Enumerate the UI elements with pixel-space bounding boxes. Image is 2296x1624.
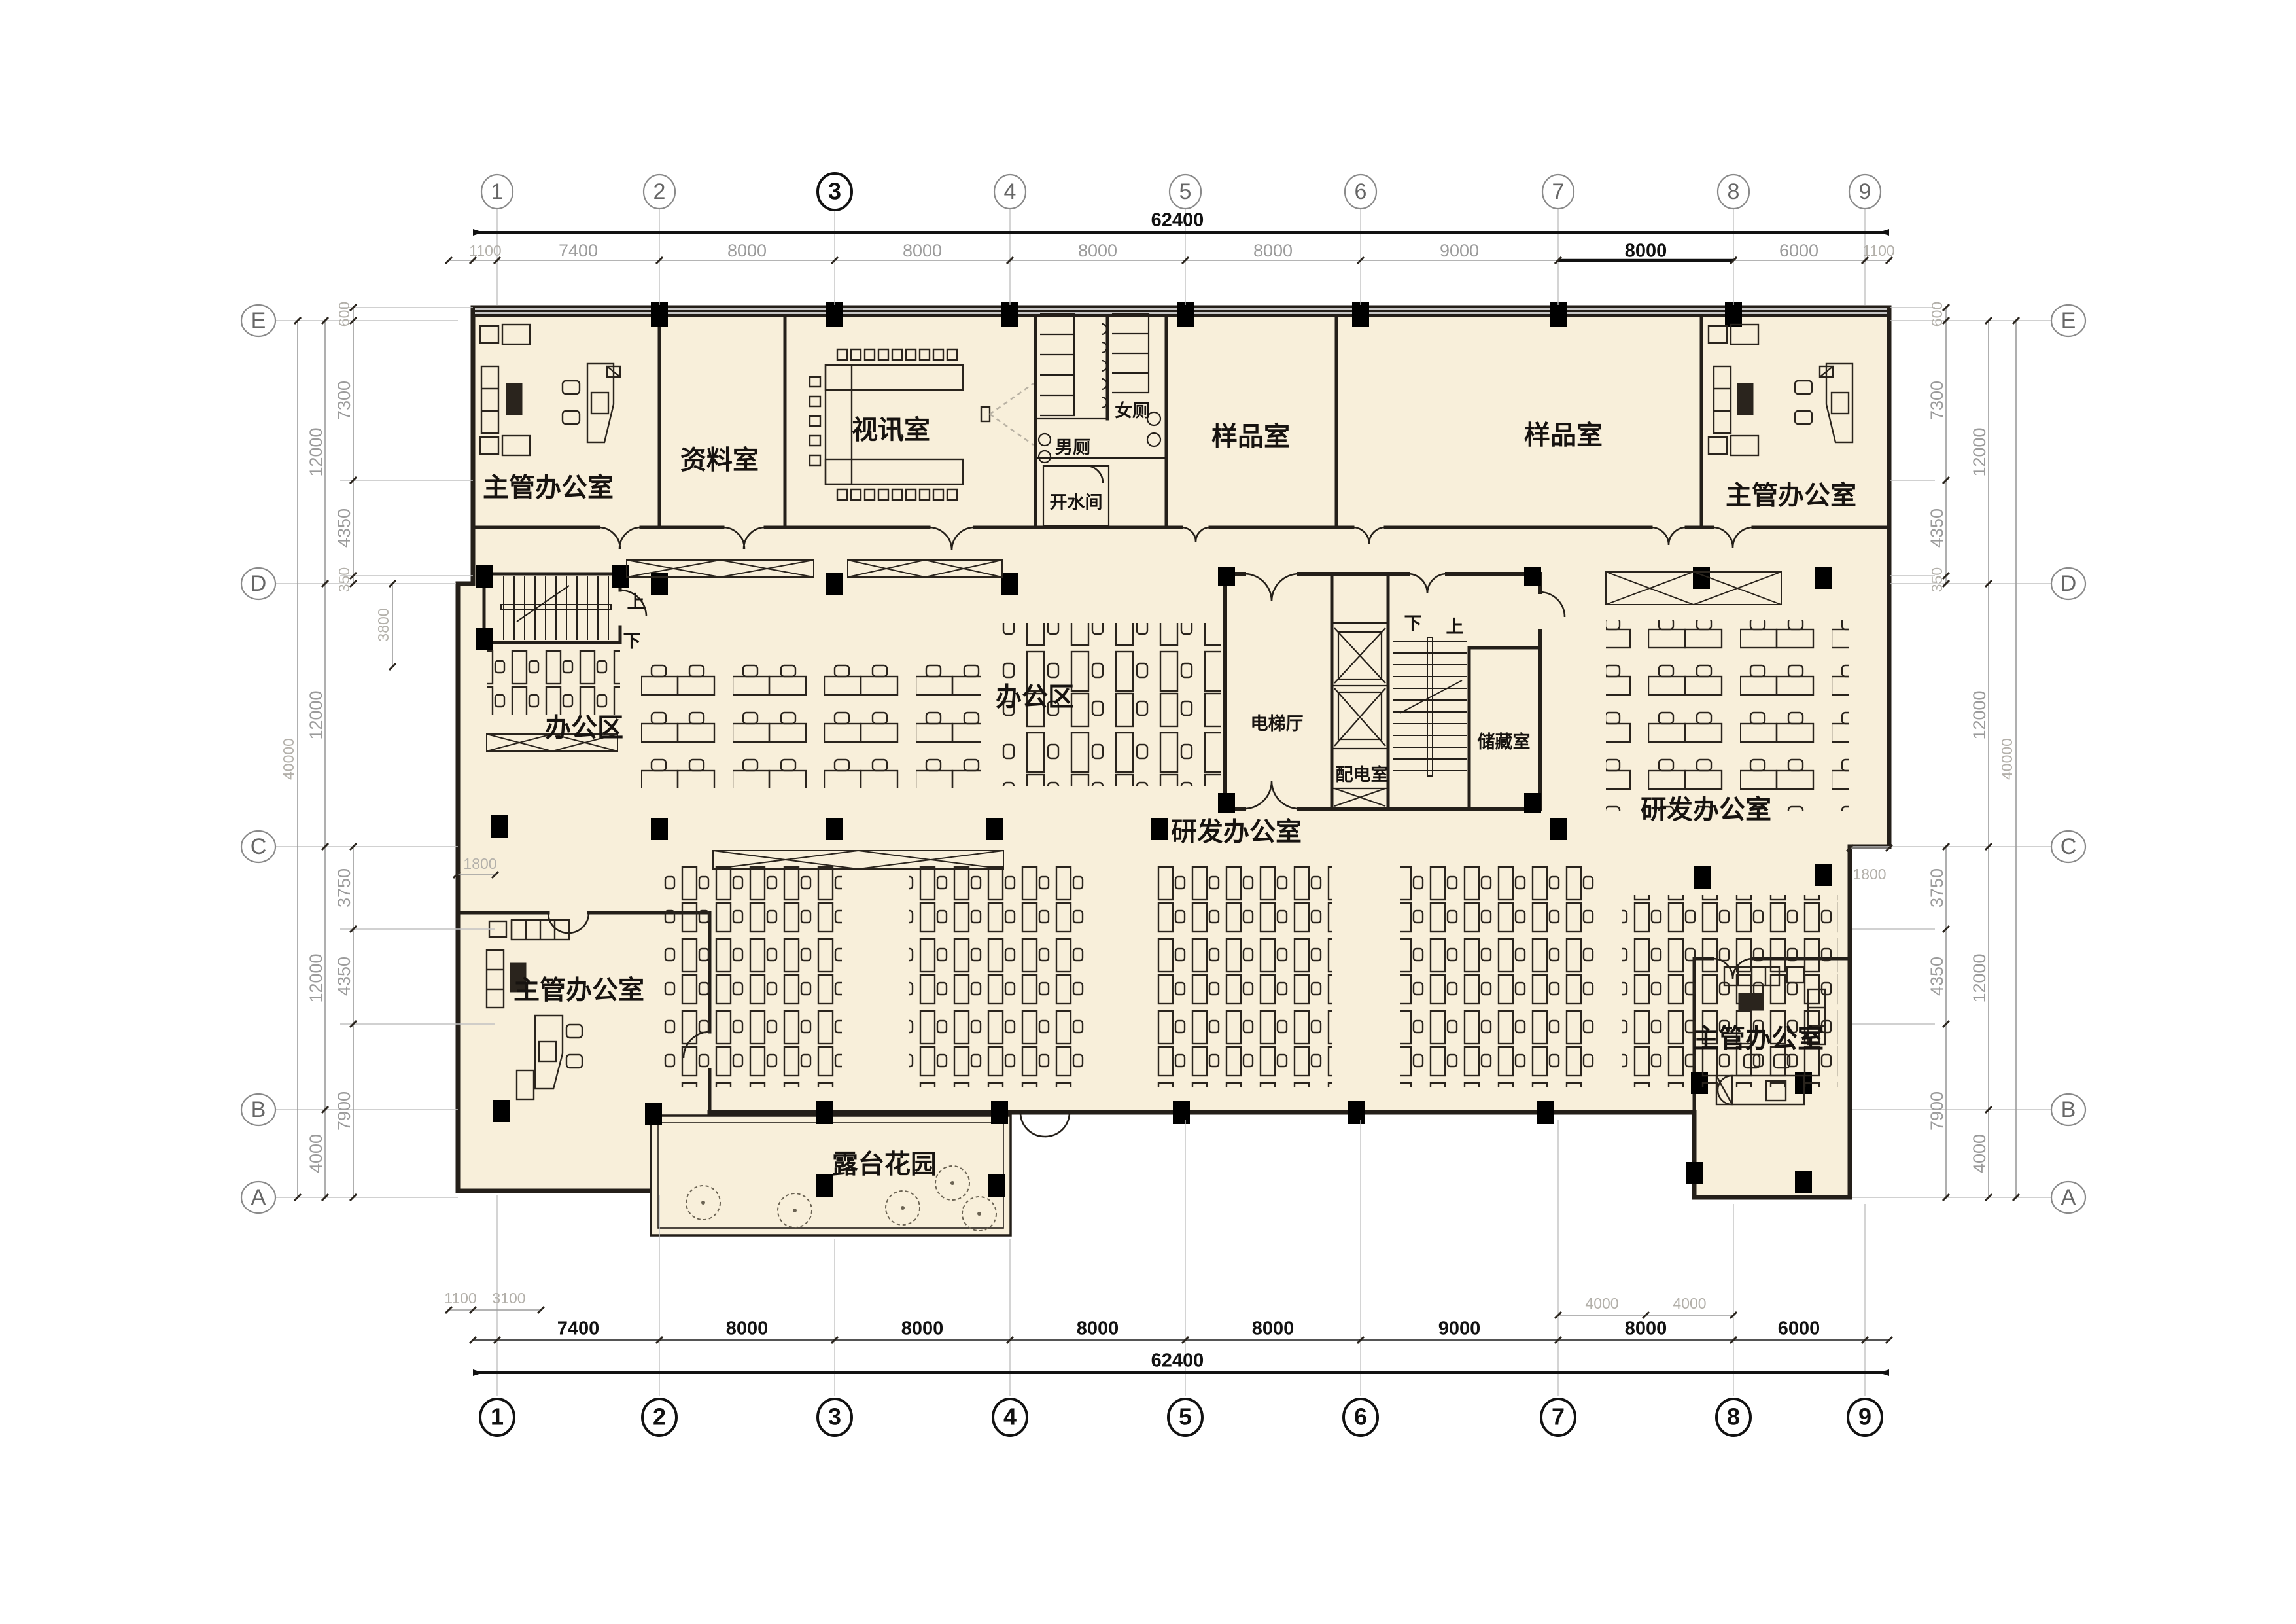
dim-bottom-seg: 7400 — [557, 1318, 600, 1339]
dim-bottom-sub: 4000 — [1673, 1295, 1706, 1312]
dim-top-pre: 1100 — [469, 242, 501, 259]
dim-left-stair: 3800 — [375, 608, 392, 641]
grid-bubble-label: 3 — [828, 178, 841, 205]
grid-bubble-label: 6 — [1354, 1403, 1367, 1430]
grid-bubble-label: C — [2061, 834, 2077, 859]
grid-bubbles-bottom: 1 2 3 4 5 6 7 8 9 — [480, 1399, 1882, 1436]
dim-top-seg: 7400 — [559, 241, 598, 260]
dim-left-mid: 4000 — [306, 1134, 326, 1173]
grid-bubble-label: E — [251, 308, 266, 333]
desk-cluster — [1400, 865, 1596, 1087]
room-label-rnd-c: 研发办公室 — [1171, 818, 1302, 847]
dim-left: 600 — [336, 302, 353, 327]
room-label-sample-2: 样品室 — [1524, 421, 1603, 450]
dim-bottom-seg: 8000 — [1077, 1318, 1119, 1339]
dim-left: 4350 — [334, 957, 354, 996]
grid-bubble-label: 8 — [1728, 179, 1740, 204]
room-label-sample-1: 样品室 — [1211, 423, 1290, 451]
dim-bottom: 1100 3100 4000 4000 7400 8000 8000 8000 … — [444, 1290, 1889, 1373]
grid-bubble-label: A — [251, 1185, 266, 1210]
dim-bottom-seg: 8000 — [1625, 1318, 1667, 1339]
room-label-exec-sw: 主管办公室 — [513, 976, 644, 1005]
dim-top-seg: 6000 — [1779, 241, 1818, 260]
room-label-men-toilet: 男厕 — [1055, 438, 1090, 457]
dim-left: 7300 — [334, 381, 354, 420]
grid-bubble-label: D — [2061, 571, 2077, 596]
grid-bubble-label: B — [251, 1097, 266, 1122]
desk-cluster — [1155, 865, 1332, 1087]
room-label-storage: 储藏室 — [1478, 732, 1531, 752]
grid-bubble-label: 9 — [1858, 1403, 1871, 1430]
room-label-office-area-c: 办公区 — [996, 683, 1074, 712]
grid-bubble-label: 5 — [1179, 179, 1192, 204]
desk-cluster — [1622, 895, 1838, 1087]
grid-bubbles-right: E D C B A — [2051, 305, 2085, 1213]
dim-left: 4350 — [334, 508, 354, 548]
dim-top-seg: 8000 — [727, 241, 767, 260]
dim-right-total: 40000 — [1998, 738, 2015, 780]
dim-bottom-sub: 3100 — [492, 1290, 525, 1307]
dim-right: 7900 — [1927, 1091, 1947, 1131]
dim-right-mid: 12000 — [1970, 690, 1989, 739]
floor-plan-page: 主管办公室 资料室 视讯室 男厕 女厕 开水间 样品室 样品室 主管办公室 办公… — [0, 0, 2296, 1624]
desk-cluster — [909, 865, 1087, 1087]
dim-bottom-total: 62400 — [1151, 1350, 1204, 1371]
stair-down-label-west: 下 — [623, 631, 641, 651]
dim-top-post: 1100 — [1862, 242, 1894, 259]
dim-right: 350 — [1928, 567, 1945, 592]
grid-bubble-label: 1 — [491, 1403, 504, 1430]
dim-bottom-seg: 9000 — [1438, 1318, 1481, 1339]
grid-bubble-label: 2 — [653, 179, 666, 204]
dim-top-seg-bold: 8000 — [1625, 241, 1667, 262]
grid-bubble-label: 4 — [1003, 1403, 1017, 1430]
room-label-office-area-w: 办公区 — [545, 714, 623, 743]
dim-left-mid: 12000 — [306, 690, 326, 739]
grid-bubble-label: C — [251, 834, 267, 859]
grid-bubble-label: B — [2061, 1097, 2076, 1122]
dim-top-seg: 8000 — [1078, 241, 1117, 260]
desk-cluster — [1606, 620, 1849, 811]
grid-bubble-label: 8 — [1727, 1403, 1740, 1430]
dim-bottom-sub: 1100 — [444, 1290, 476, 1307]
desk-cluster — [664, 865, 842, 1087]
dim-bottom-seg: 8000 — [726, 1318, 769, 1339]
stair-down-label: 下 — [1404, 614, 1422, 633]
dim-right: 600 — [1928, 302, 1945, 327]
dim-right-mid: 12000 — [1970, 953, 1989, 1002]
room-label-women-toilet: 女厕 — [1115, 400, 1150, 421]
room-label-power-room: 配电室 — [1336, 764, 1389, 785]
dim-right-mid: 4000 — [1970, 1134, 1989, 1173]
dim-left-mid: 12000 — [306, 427, 326, 476]
dim-left: 350 — [336, 567, 353, 592]
stair-up-label: 上 — [1446, 617, 1464, 637]
dim-right: 4350 — [1927, 957, 1947, 996]
room-label-terrace: 露台花园 — [832, 1150, 937, 1179]
dim-bottom-sub: 4000 — [1585, 1295, 1618, 1312]
grid-bubble-label: 9 — [1859, 179, 1871, 204]
grid-bubble-label: D — [251, 571, 267, 596]
room-label-rnd-e: 研发办公室 — [1641, 796, 1771, 824]
dim-right-mid: 12000 — [1970, 427, 1989, 476]
grid-bubble-label: 5 — [1179, 1403, 1192, 1430]
dim-bottom-seg: 8000 — [1252, 1318, 1295, 1339]
grid-bubbles-top: 1 2 3 4 5 6 7 8 9 — [481, 173, 1881, 210]
desk-cluster — [625, 649, 981, 788]
grid-bubble-label: 2 — [653, 1403, 666, 1430]
room-label-exec-ne: 主管办公室 — [1726, 482, 1856, 510]
dim-right: 3750 — [1927, 868, 1947, 908]
grid-bubble-label: A — [2061, 1185, 2076, 1210]
dim-top-seg: 8000 — [903, 241, 942, 260]
grid-bubble-label: 7 — [1552, 179, 1565, 204]
dim-left-mid: 12000 — [306, 953, 326, 1002]
grid-bubble-label: 4 — [1004, 179, 1017, 204]
room-label-exec-nw: 主管办公室 — [483, 474, 614, 503]
dim-top-seg: 9000 — [1440, 241, 1479, 260]
dim-left: 7900 — [334, 1091, 354, 1131]
grid-bubble-label: 6 — [1355, 179, 1367, 204]
grid-bubble-label: 3 — [828, 1403, 841, 1430]
dim-right: 4350 — [1927, 508, 1947, 548]
dim-right-notch: 1800 — [1852, 866, 1886, 883]
room-label-video: 视讯室 — [852, 416, 930, 445]
grid-bubble-label: E — [2061, 308, 2076, 333]
grid-bubble-label: 7 — [1552, 1403, 1565, 1430]
dim-left: 3750 — [334, 868, 354, 908]
grid-bubbles-left: E D C B A — [241, 305, 275, 1213]
room-label-elevator-hall: 电梯厅 — [1251, 714, 1304, 733]
dim-bottom-seg: 8000 — [901, 1318, 944, 1339]
dim-left-total: 40000 — [280, 738, 297, 780]
stair-up-label-west: 上 — [627, 592, 645, 612]
dim-left-notch: 1800 — [463, 855, 496, 872]
room-label-exec-se: 主管办公室 — [1693, 1025, 1824, 1053]
dim-top-total: 62400 — [1151, 210, 1204, 231]
room-label-archive: 资料室 — [680, 446, 759, 475]
dim-right: 7300 — [1927, 381, 1947, 420]
room-label-water-room: 开水间 — [1050, 493, 1103, 512]
grid-bubble-label: 1 — [491, 179, 504, 204]
dim-top-seg: 8000 — [1253, 241, 1293, 260]
floor-plan-canvas: 主管办公室 资料室 视讯室 男厕 女厕 开水间 样品室 样品室 主管办公室 办公… — [0, 0, 2296, 1624]
dim-bottom-seg: 6000 — [1778, 1318, 1820, 1339]
desk-cluster — [487, 646, 620, 715]
dim-top: 62400 1100 7400 8000 8000 8000 8000 9000… — [449, 210, 1895, 262]
